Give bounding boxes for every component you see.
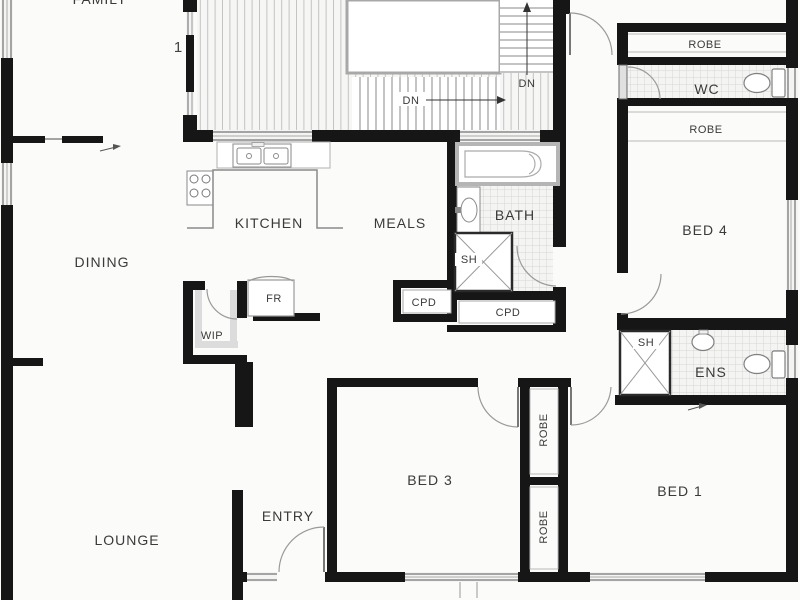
window-ens bbox=[786, 345, 798, 378]
room-label-wc: WC bbox=[694, 81, 719, 97]
label-robe-mid: ROBE bbox=[689, 124, 722, 136]
label-wip: WIP bbox=[201, 330, 223, 342]
label-sh-ens: SH bbox=[638, 337, 654, 349]
window-kitchen bbox=[213, 130, 312, 142]
room-label-bed4: BED 4 bbox=[682, 222, 727, 238]
stairs-lower-flight bbox=[352, 77, 506, 130]
window-entry bbox=[247, 572, 277, 582]
window-bed3 bbox=[405, 572, 518, 582]
room-label-dining: DINING bbox=[75, 254, 130, 270]
window-deck-a bbox=[186, 12, 194, 35]
room-label-ens: ENS bbox=[695, 364, 727, 380]
window-bed4 bbox=[786, 200, 798, 290]
room-label-kitchen: KITCHEN bbox=[235, 215, 303, 231]
floorplan-canvas: FAMILY DINING KITCHEN MEALS LOUNGE ENTRY… bbox=[0, 0, 800, 600]
stove-icon bbox=[187, 171, 213, 205]
window-bed1 bbox=[590, 572, 705, 582]
label-level-marker: 1 bbox=[174, 39, 182, 56]
window-dining-left bbox=[1, 163, 13, 205]
deck-area bbox=[197, 0, 553, 130]
bathtub-icon bbox=[457, 144, 558, 184]
door-bed4 bbox=[621, 274, 661, 314]
room-label-family: FAMILY bbox=[73, 0, 128, 7]
window-deck-b bbox=[186, 92, 194, 115]
door-bed1 bbox=[571, 387, 611, 425]
room-label-bed1: BED 1 bbox=[657, 483, 702, 499]
window-family-left bbox=[1, 0, 13, 58]
label-cpd-right: CPD bbox=[496, 307, 521, 319]
room-label-entry: ENTRY bbox=[262, 508, 314, 524]
label-dn-upper: DN bbox=[519, 78, 536, 90]
label-fr: FR bbox=[266, 293, 282, 305]
door-bed3 bbox=[478, 387, 518, 427]
label-robe-top: ROBE bbox=[688, 39, 721, 51]
door-entry bbox=[279, 527, 324, 572]
room-label-meals: MEALS bbox=[374, 215, 426, 231]
stairs-upper-flight bbox=[500, 0, 553, 75]
label-sh-bath: SH bbox=[461, 254, 477, 266]
stair-void bbox=[347, 0, 500, 73]
bath-basin-icon bbox=[455, 187, 480, 233]
sink-icon bbox=[233, 143, 291, 168]
label-robe-v1: ROBE bbox=[538, 413, 550, 446]
window-bath bbox=[460, 130, 540, 142]
room-label-bath: BATH bbox=[495, 207, 535, 223]
label-dn-lower: DN bbox=[403, 95, 420, 107]
room-label-bed3: BED 3 bbox=[407, 472, 452, 488]
room-label-lounge: LOUNGE bbox=[94, 532, 159, 548]
label-robe-v2: ROBE bbox=[538, 510, 550, 543]
door-hall-top bbox=[570, 13, 612, 55]
label-cpd-left: CPD bbox=[412, 297, 437, 309]
window-wc bbox=[786, 68, 798, 98]
floorplan-drawing: FAMILY DINING KITCHEN MEALS LOUNGE ENTRY… bbox=[0, 0, 800, 600]
